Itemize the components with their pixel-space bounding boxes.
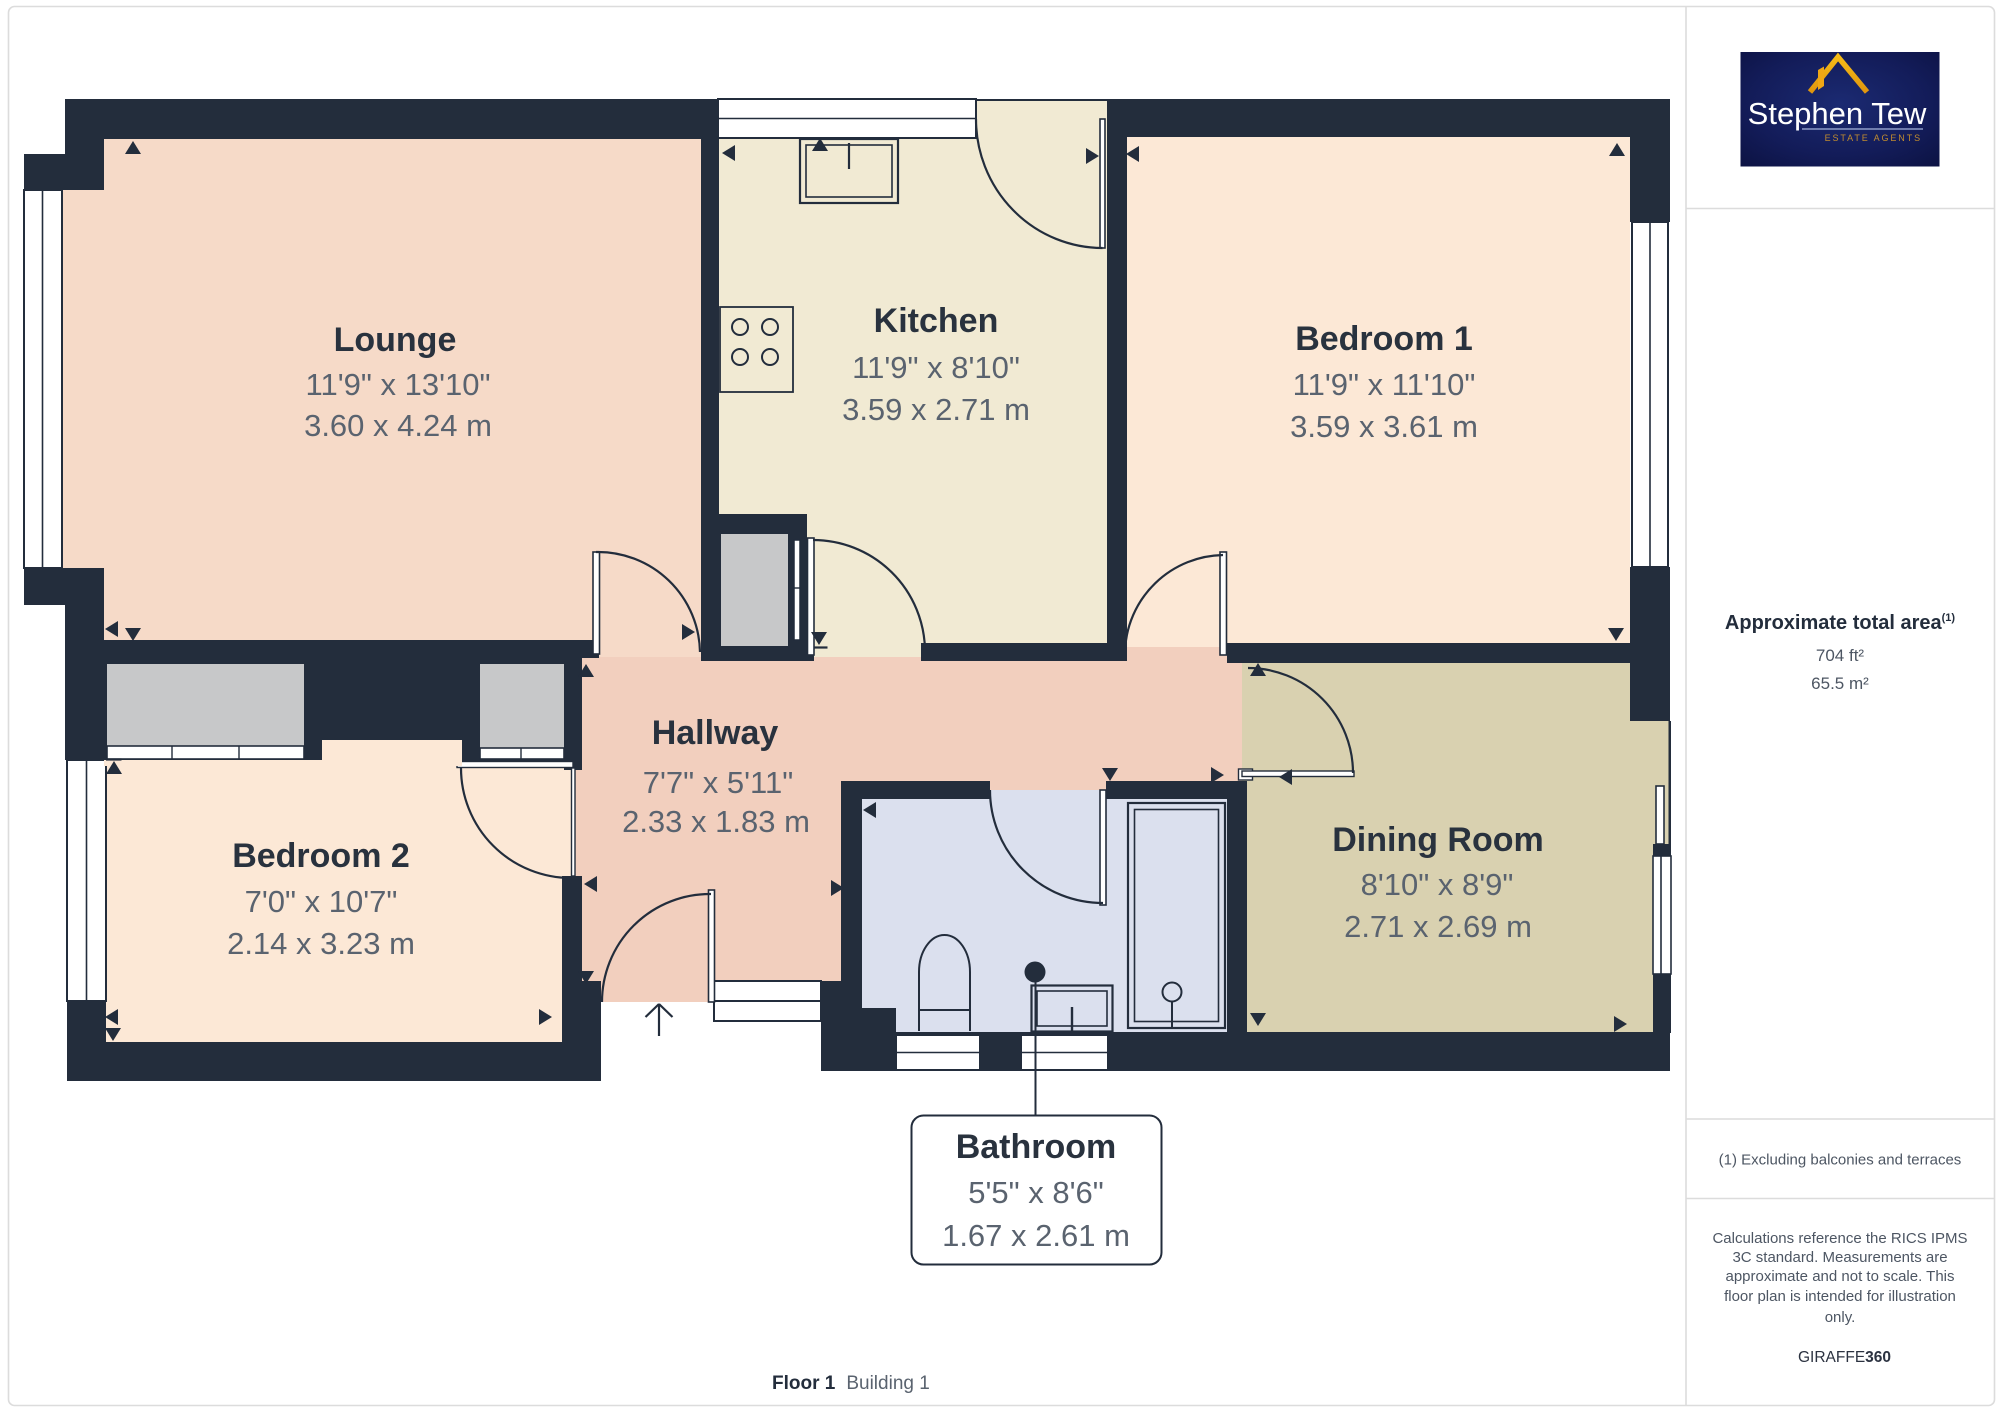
svg-text:3.59 x 2.71 m: 3.59 x 2.71 m <box>842 392 1030 427</box>
svg-text:2.14 x 3.23 m: 2.14 x 3.23 m <box>227 926 415 961</box>
svg-text:Bathroom: Bathroom <box>956 1128 1117 1166</box>
svg-text:1.67 x 2.61 m: 1.67 x 2.61 m <box>942 1218 1130 1253</box>
svg-text:floor plan is intended for ill: floor plan is intended for illustration <box>1724 1288 1956 1305</box>
svg-text:approximate and not to scale.: approximate and not to scale. This <box>1725 1268 1954 1285</box>
svg-text:Dining Room: Dining Room <box>1332 821 1544 859</box>
svg-text:3.60 x 4.24 m: 3.60 x 4.24 m <box>304 408 492 443</box>
svg-text:Bedroom 2: Bedroom 2 <box>232 837 410 875</box>
svg-text:5'5" x 8'6": 5'5" x 8'6" <box>968 1175 1104 1210</box>
svg-text:11'9" x 11'10": 11'9" x 11'10" <box>1293 367 1476 402</box>
svg-text:8'10" x 8'9": 8'10" x 8'9" <box>1361 867 1514 902</box>
svg-text:65.5 m²: 65.5 m² <box>1811 674 1869 693</box>
svg-text:Calculations reference the RIC: Calculations reference the RICS IPMS <box>1712 1230 1967 1247</box>
svg-text:7'7" x 5'11": 7'7" x 5'11" <box>643 765 793 800</box>
svg-text:Stephen Tew: Stephen Tew <box>1748 96 1927 131</box>
svg-text:3C standard. Measurements are: 3C standard. Measurements are <box>1732 1249 1947 1266</box>
svg-text:Hallway: Hallway <box>652 714 779 752</box>
svg-text:Lounge: Lounge <box>334 321 457 359</box>
svg-text:Floor 1Building 1: Floor 1Building 1 <box>772 1373 930 1394</box>
svg-text:704 ft²: 704 ft² <box>1816 646 1865 665</box>
svg-text:ESTATE AGENTS: ESTATE AGENTS <box>1825 133 1922 143</box>
svg-text:Bedroom 1: Bedroom 1 <box>1295 320 1473 358</box>
svg-text:11'9" x 8'10": 11'9" x 8'10" <box>852 350 1020 385</box>
svg-text:7'0" x 10'7": 7'0" x 10'7" <box>245 884 398 919</box>
svg-text:Kitchen: Kitchen <box>874 302 999 340</box>
svg-text:2.71 x 2.69 m: 2.71 x 2.69 m <box>1344 909 1532 944</box>
svg-text:GIRAFFE360: GIRAFFE360 <box>1798 1349 1891 1366</box>
svg-text:only.: only. <box>1825 1309 1856 1326</box>
svg-text:Approximate total area(1): Approximate total area(1) <box>1725 612 1956 634</box>
svg-text:(1) Excluding balconies and te: (1) Excluding balconies and terraces <box>1719 1152 1962 1169</box>
svg-text:3.59 x 3.61 m: 3.59 x 3.61 m <box>1290 409 1478 444</box>
svg-text:2.33 x 1.83 m: 2.33 x 1.83 m <box>622 804 810 839</box>
svg-text:11'9" x 13'10": 11'9" x 13'10" <box>306 367 491 402</box>
